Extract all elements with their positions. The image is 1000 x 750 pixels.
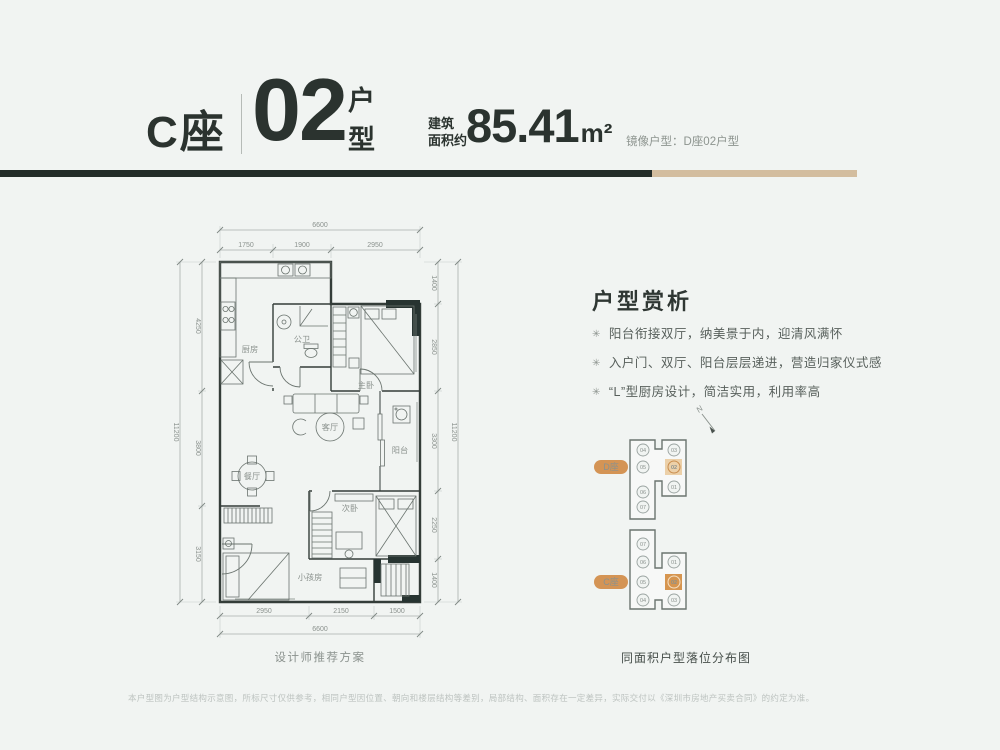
- block-c-unit: 06: [640, 560, 646, 566]
- location-map-caption: 同面积户型落位分布图: [596, 649, 776, 666]
- dim-top-2: 1900: [294, 242, 310, 249]
- header-rule-tan: [652, 170, 857, 177]
- building-block-label: C座: [146, 96, 226, 160]
- dim-bottom-2: 2150: [333, 608, 349, 615]
- label-living-room: 客厅: [322, 422, 338, 432]
- block-c-unit: 05: [640, 580, 646, 586]
- dim-labels: 6600 1750 1900 2950 2950 2150 1500 6600 …: [172, 222, 457, 633]
- building-location-map: N 04 05 06 07 03 02 01 D座 07: [588, 398, 788, 648]
- dim-right-total: 11200: [450, 423, 457, 442]
- dim-top-total: 6600: [312, 222, 328, 229]
- living-room-furniture: [284, 394, 368, 441]
- area-number: 85.41: [466, 99, 579, 152]
- block-d-unit: 01: [671, 485, 677, 491]
- block-d: 04 05 06 07 03 02 01 D座: [594, 440, 686, 519]
- label-balcony: 阳台: [392, 445, 408, 455]
- shaft-hatch: [381, 564, 409, 596]
- header-rule-dark: [0, 170, 652, 177]
- label-bath: 公卫: [294, 335, 310, 344]
- dim-left-total: 11200: [172, 423, 179, 442]
- header-divider: [241, 94, 242, 154]
- balcony-furniture: [393, 406, 410, 423]
- dim-bottom-1: 2950: [256, 608, 272, 615]
- block-c-unit: 07: [640, 542, 646, 548]
- analysis-bullet-1: ✳ 阳台衔接双厅，纳美景于内，迎清风满怀: [592, 326, 982, 343]
- north-label: N: [695, 404, 705, 415]
- label-kitchen: 厨房: [242, 344, 258, 354]
- unit-suffix-char-1: 户: [348, 82, 375, 121]
- bathroom-fixtures: [277, 306, 328, 358]
- block-d-unit-02: 02: [671, 465, 677, 471]
- dim-left-1: 4250: [194, 318, 201, 334]
- label-kids-room: 小孩房: [298, 572, 323, 582]
- block-c-unit: 04: [640, 598, 646, 604]
- north-arrow-icon: N: [695, 404, 715, 434]
- area-prefix-line-1: 建筑: [428, 115, 467, 132]
- master-bedroom-furniture: [333, 306, 414, 374]
- block-d-unit: 06: [640, 490, 646, 496]
- walls: [220, 262, 420, 602]
- analysis-bullet-2: ✳ 入户门、双厅、阳台层层递进，营造归家仪式感: [592, 355, 982, 372]
- area-prefix-line-2: 面积约: [428, 132, 467, 149]
- area-prefix: 建筑 面积约: [428, 115, 467, 149]
- asterisk-bullet-icon: ✳: [592, 326, 601, 343]
- block-c: 07 06 05 04 01 02 03 C座: [594, 530, 686, 609]
- footer-disclaimer: 本户型图为户型结构示意图，所标尺寸仅供参考，相同户型因位置、朝向和楼层结构等差别…: [128, 692, 888, 704]
- dim-top-1: 1750: [238, 242, 254, 249]
- dim-right-2: 2850: [430, 339, 437, 355]
- dim-top-3: 2950: [367, 242, 383, 249]
- block-d-unit: 05: [640, 465, 646, 471]
- dim-right-3: 3300: [430, 433, 437, 449]
- label-second-bedroom: 次卧: [342, 503, 358, 513]
- unit-number: 02: [252, 64, 346, 156]
- area-value: 85.41m²: [466, 98, 612, 153]
- block-d-label: D座: [603, 461, 619, 472]
- kids-room-furniture: [223, 538, 366, 600]
- second-bedroom-furniture: [312, 494, 416, 558]
- analysis-bullet-2-text: 入户门、双厅、阳台层层递进，营造归家仪式感: [609, 355, 882, 372]
- dim-right-1: 1400: [430, 275, 437, 291]
- balcony-slider: [378, 414, 385, 466]
- asterisk-bullet-icon: ✳: [592, 355, 601, 372]
- label-dining-room: 餐厅: [244, 472, 260, 481]
- block-c-unit-02: 02: [671, 580, 677, 586]
- floorplan-drawing: 6600 1750 1900 2950 2950 2150 1500 6600 …: [150, 212, 470, 672]
- dim-right-4: 2250: [430, 517, 437, 533]
- area-unit: m²: [581, 118, 613, 148]
- block-c-label: C座: [603, 576, 619, 587]
- block-d-unit: 04: [640, 448, 646, 454]
- block-d-unit: 07: [640, 505, 646, 511]
- unit-suffix-char-2: 型: [348, 121, 375, 160]
- dim-right-5: 1400: [430, 572, 437, 588]
- kitchen-furniture: [220, 262, 331, 384]
- block-d-unit: 03: [671, 448, 677, 454]
- label-master-bedroom: 主卧: [358, 380, 374, 390]
- mirror-unit-note: 镜像户型：D座02户型: [626, 133, 739, 149]
- analysis-bullet-1-text: 阳台衔接双厅，纳美景于内，迎清风满怀: [609, 326, 843, 343]
- dim-left-3: 3150: [194, 546, 201, 562]
- dining-room-furniture: [224, 456, 274, 523]
- dim-left-2: 3800: [194, 440, 201, 456]
- dim-bottom-3: 1500: [389, 608, 405, 615]
- dim-bottom-total: 6600: [312, 626, 328, 633]
- analysis-title: 户型赏析: [592, 284, 692, 316]
- block-c-unit: 03: [671, 598, 677, 604]
- block-c-unit: 01: [671, 560, 677, 566]
- unit-suffix: 户 型: [348, 82, 375, 160]
- floorplan-caption: 设计师推荐方案: [275, 650, 366, 664]
